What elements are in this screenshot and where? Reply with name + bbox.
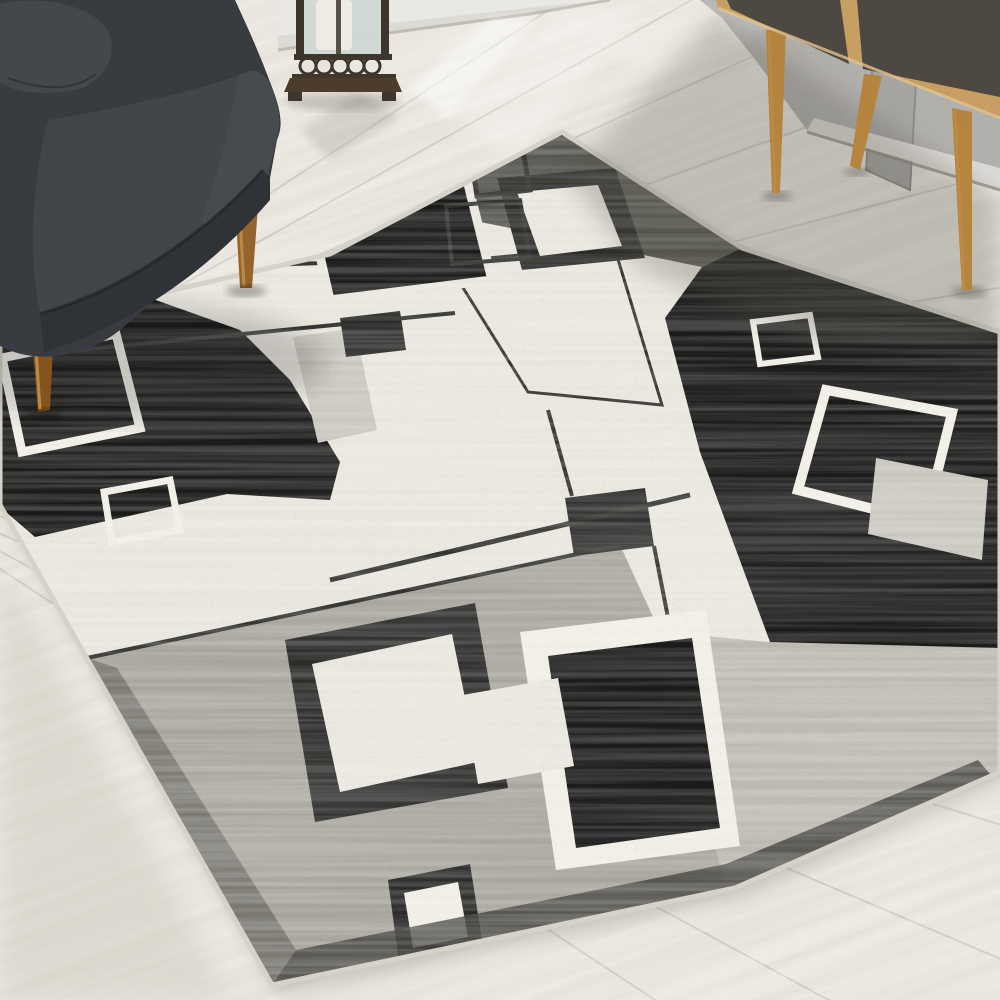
living-room-photo xyxy=(0,0,1000,1000)
lantern-frame-bar xyxy=(296,0,304,60)
lantern-frame-bar xyxy=(336,0,341,58)
lantern-foot xyxy=(288,92,302,101)
lantern-frame-bar xyxy=(381,0,389,60)
lantern-candle xyxy=(316,0,352,50)
lantern-foot xyxy=(382,92,396,101)
sideboard-panel-texture xyxy=(716,0,1000,120)
lantern xyxy=(284,0,402,111)
photo-canvas xyxy=(0,0,1000,1000)
chair-leg-shadow xyxy=(26,408,62,420)
chair-leg-shadow xyxy=(226,285,266,297)
lantern-base xyxy=(284,78,402,92)
sideboard-leg-shadow xyxy=(844,168,870,176)
